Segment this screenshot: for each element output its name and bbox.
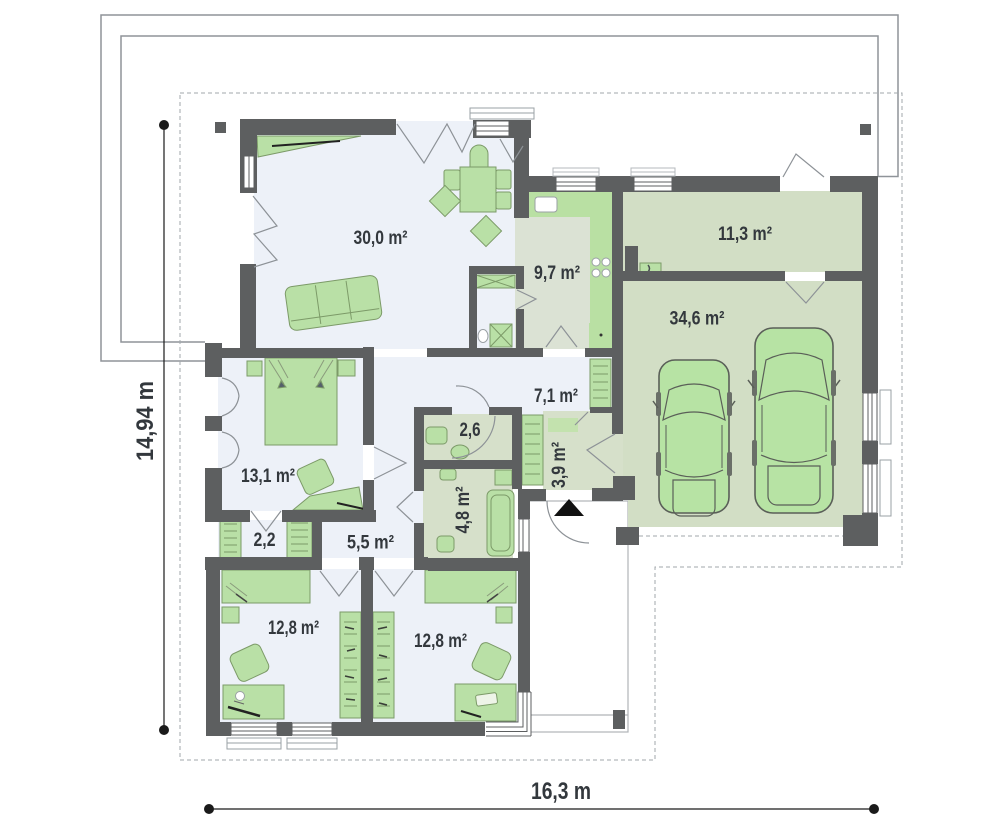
- svg-text:3,9 m²: 3,9 m²: [549, 442, 570, 488]
- svg-text:13,1 m²: 13,1 m²: [241, 466, 295, 487]
- svg-text:4,8 m²: 4,8 m²: [453, 487, 474, 534]
- svg-text:5,5 m²: 5,5 m²: [347, 533, 394, 554]
- svg-text:14,94 m: 14,94 m: [132, 381, 159, 461]
- svg-text:9,7 m²: 9,7 m²: [534, 263, 580, 284]
- svg-text:2,6: 2,6: [460, 420, 481, 441]
- svg-text:11,3 m²: 11,3 m²: [718, 224, 772, 245]
- svg-text:12,8 m²: 12,8 m²: [414, 631, 467, 652]
- svg-text:34,6 m²: 34,6 m²: [670, 309, 725, 330]
- svg-text:30,0 m²: 30,0 m²: [354, 228, 408, 249]
- svg-text:2,2: 2,2: [254, 530, 276, 551]
- svg-text:12,8 m²: 12,8 m²: [268, 618, 319, 639]
- svg-text:7,1 m²: 7,1 m²: [534, 386, 578, 407]
- svg-text:16,3 m: 16,3 m: [531, 778, 591, 805]
